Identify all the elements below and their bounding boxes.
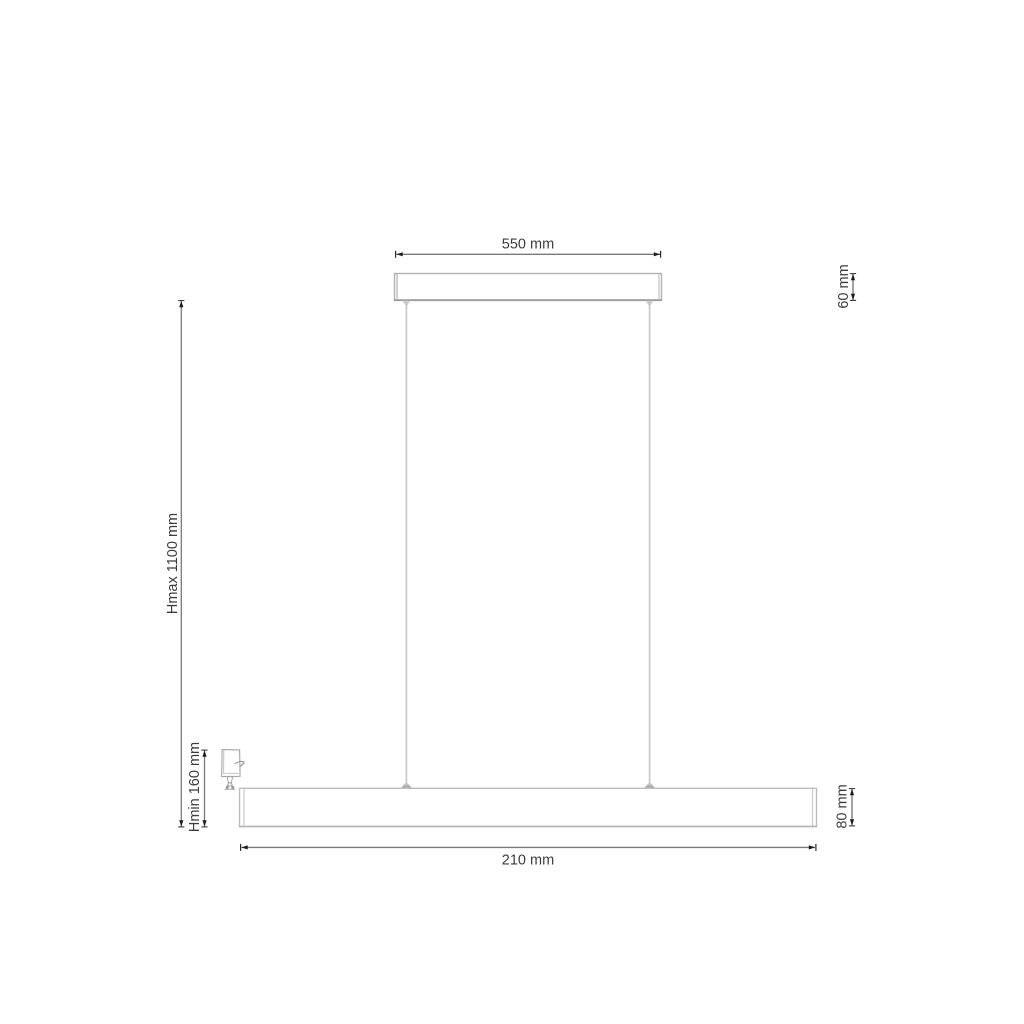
svg-text:Hmax 1100 mm: Hmax 1100 mm (165, 513, 181, 614)
svg-text:550 mm: 550 mm (502, 237, 554, 253)
svg-text:210 mm: 210 mm (502, 853, 554, 869)
svg-text:Hmin 160 mm: Hmin 160 mm (187, 742, 203, 832)
svg-text:60 mm: 60 mm (836, 264, 852, 308)
svg-text:80 mm: 80 mm (835, 784, 851, 828)
